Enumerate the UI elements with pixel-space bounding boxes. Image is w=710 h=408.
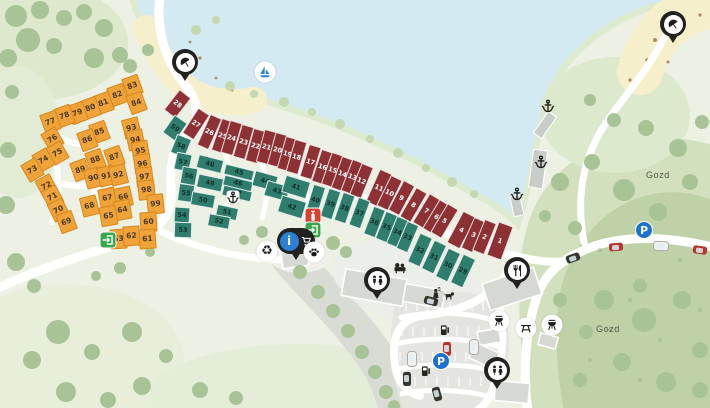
campsite-map: 8382848180797877938586947675957488879673… xyxy=(0,0,710,408)
picnic-table-icon[interactable] xyxy=(516,318,537,339)
grill-icon-east[interactable] xyxy=(542,315,563,336)
beach-pin-east[interactable] xyxy=(660,11,686,37)
anchor-icon-mid[interactable] xyxy=(534,155,548,169)
anchor-icon-south[interactable] xyxy=(510,187,524,201)
toilets-pin-central[interactable] xyxy=(364,267,390,293)
beach-pin-west[interactable] xyxy=(172,49,198,75)
dog-area-icon[interactable] xyxy=(304,242,325,263)
mooring-icon[interactable] xyxy=(227,191,240,204)
parking-icon-road[interactable]: P xyxy=(635,221,653,239)
recycling-icon[interactable]: ♻ xyxy=(257,241,278,262)
grill-icon-west[interactable] xyxy=(489,311,510,332)
shower-icon[interactable] xyxy=(432,286,442,298)
ev-charger-icon-south[interactable] xyxy=(421,365,432,378)
water-sports-icon[interactable] xyxy=(255,62,276,83)
fire-point-icon[interactable] xyxy=(306,209,321,224)
forest-label-lower: Gozd xyxy=(596,324,620,334)
toilets-pin-south[interactable] xyxy=(484,357,510,383)
entrance-icon-main[interactable] xyxy=(101,233,116,248)
dog-wash-icon[interactable] xyxy=(443,292,455,301)
parking-icon-lot[interactable]: P xyxy=(432,352,450,370)
forest-label-upper: Gozd xyxy=(646,170,670,180)
ev-charger-icon-north[interactable] xyxy=(440,324,451,337)
restaurant-pin[interactable] xyxy=(504,257,530,283)
icons-layer: i♻PP xyxy=(0,0,710,408)
anchor-icon-north[interactable] xyxy=(541,99,555,113)
projector-icon[interactable] xyxy=(394,263,407,274)
